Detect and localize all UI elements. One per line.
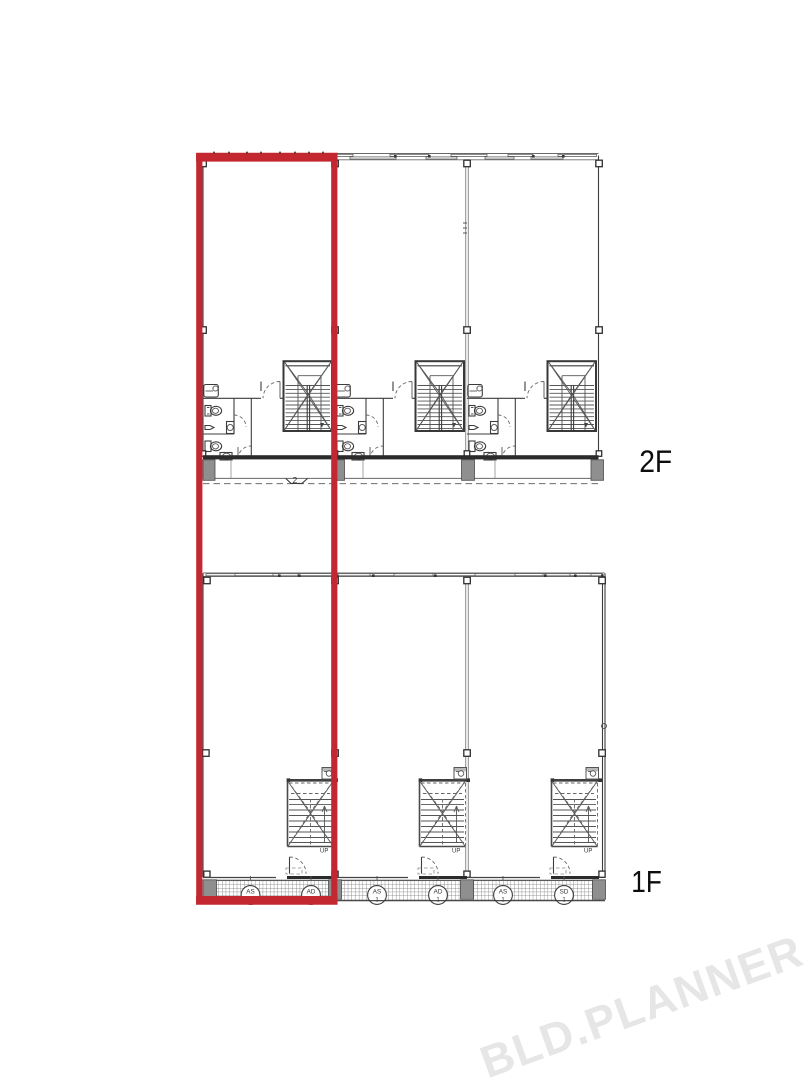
svg-text:2F: 2F bbox=[639, 444, 672, 479]
svg-text:AS: AS bbox=[246, 889, 254, 896]
svg-text:AS: AS bbox=[499, 889, 507, 896]
svg-text:SD: SD bbox=[560, 889, 569, 896]
svg-text:2: 2 bbox=[293, 475, 298, 485]
svg-text:AS: AS bbox=[373, 889, 381, 896]
svg-text:AD: AD bbox=[434, 889, 443, 896]
svg-text:AD: AD bbox=[307, 889, 316, 896]
svg-text:1F: 1F bbox=[631, 864, 662, 899]
